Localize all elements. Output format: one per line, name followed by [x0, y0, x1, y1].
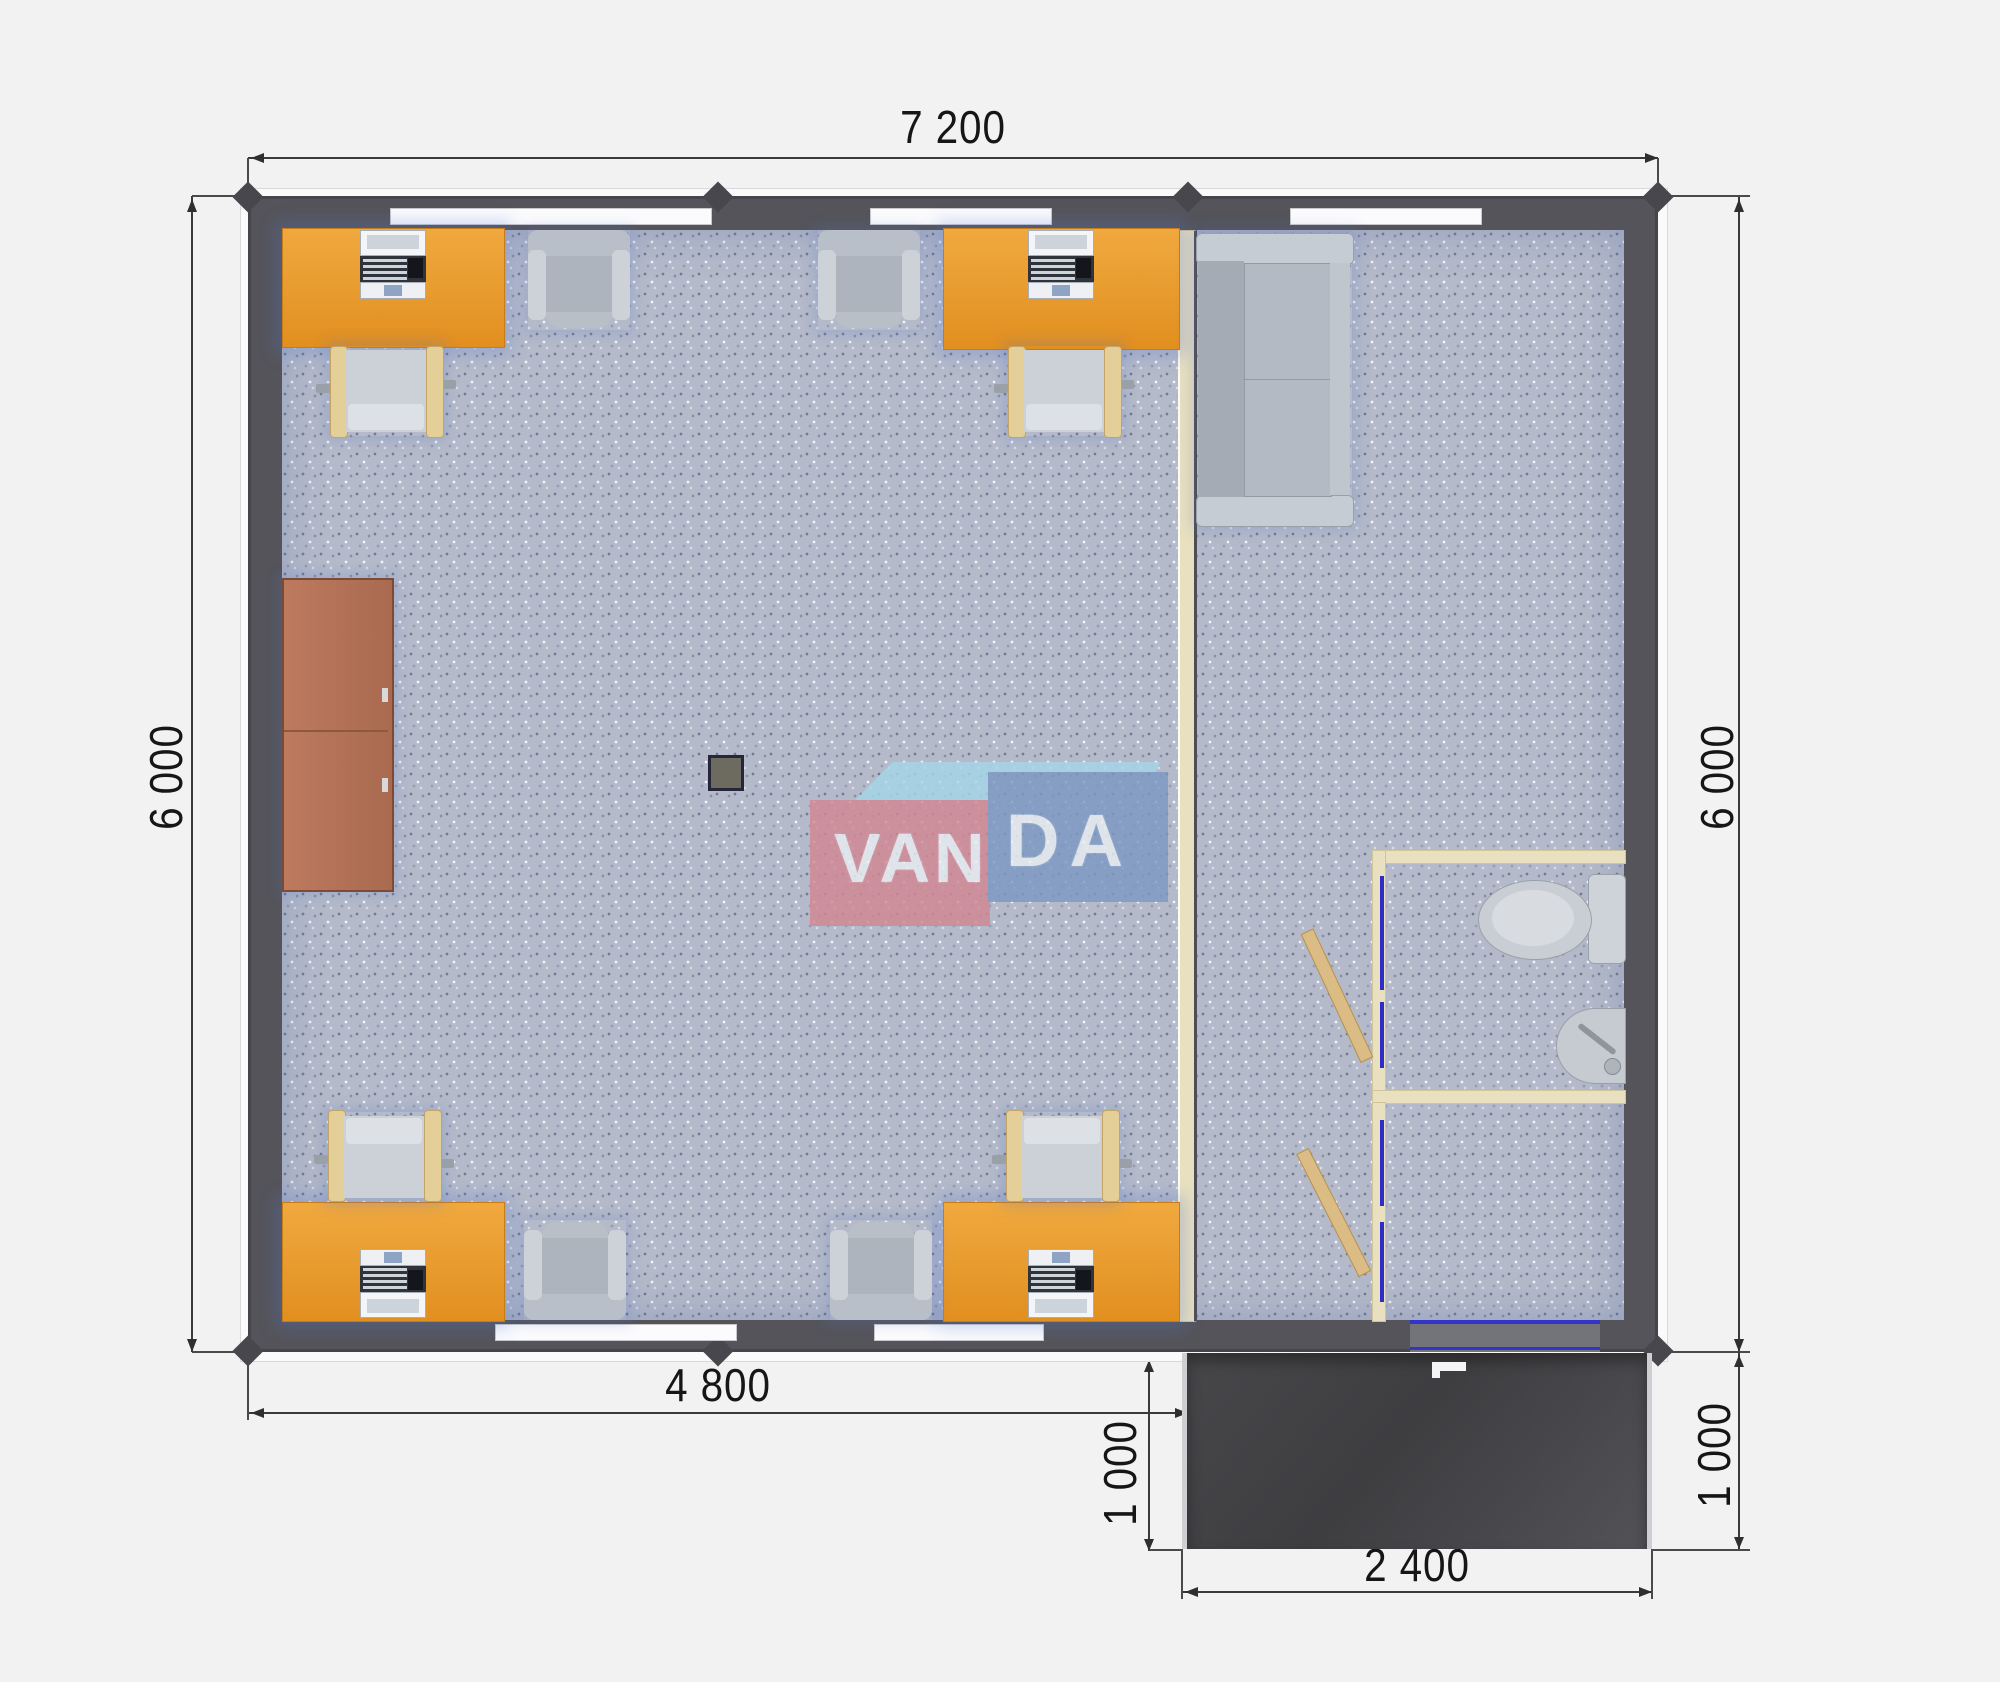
dim-arrow: [248, 1408, 264, 1418]
window-bottom-1: [495, 1324, 737, 1341]
desktop-computer: [1028, 1250, 1094, 1318]
cabinet-divider: [284, 730, 388, 732]
sofa-seat-cushion: [1244, 263, 1332, 381]
task-chair: [1008, 346, 1120, 436]
dim-arrow: [1734, 1352, 1744, 1367]
guest-armchair: [524, 1220, 626, 1320]
guest-armchair: [830, 1220, 932, 1320]
dim-porch-depth-left-label: 1 000: [1093, 1385, 1147, 1561]
dim-arrow: [1734, 196, 1744, 212]
dim-line-porch-left: [1148, 1357, 1150, 1551]
dim-line-top: [248, 157, 1658, 159]
vanda-watermark: VAN DA: [806, 758, 1170, 928]
toilet-bowl: [1478, 880, 1592, 960]
entrance-door-threshold: [1410, 1347, 1600, 1350]
computer-screen: [1028, 230, 1094, 256]
dim-left-height-label: 6 000: [139, 689, 193, 865]
bathroom-wall-top: [1372, 850, 1626, 864]
desktop-computer: [1028, 230, 1094, 298]
task-chair: [328, 1112, 440, 1202]
sofa-armrest: [1196, 495, 1354, 527]
cabinet-handle: [382, 688, 388, 702]
dim-porch-depth-right-label: 1 000: [1687, 1367, 1741, 1543]
logo-text-van: VAN: [834, 818, 989, 898]
dim-arrow: [187, 1339, 197, 1355]
sofa-seat-cushion: [1244, 379, 1332, 497]
desktop-computer: [360, 1250, 426, 1318]
vestibule-door-frame: [1380, 1120, 1384, 1206]
support-column: [708, 755, 744, 791]
cabinet-handle: [382, 778, 388, 792]
window-top-3: [1290, 208, 1482, 225]
computer-screen: [1028, 1292, 1094, 1318]
dim-arrow: [1639, 1587, 1655, 1597]
dim-arrow: [187, 196, 197, 212]
sink-faucet-knob: [1604, 1058, 1621, 1075]
bathroom-door-frame: [1380, 1002, 1384, 1068]
dim-ext: [1149, 1549, 1183, 1551]
task-chair: [330, 346, 442, 436]
logo-text-da: DA: [1006, 798, 1133, 883]
guest-armchair: [528, 230, 630, 330]
sofa: [1196, 233, 1352, 525]
bathroom-wall-bottom: [1372, 1090, 1626, 1104]
dim-line-room-width: [248, 1412, 1194, 1414]
guest-armchair: [818, 230, 920, 330]
window-bottom-2: [874, 1324, 1044, 1341]
desktop-computer: [360, 230, 426, 298]
computer-screen: [360, 230, 426, 256]
storage-cabinet: [282, 578, 394, 892]
toilet-tank: [1588, 874, 1626, 964]
sofa-back: [1198, 261, 1244, 497]
sofa-front-edge: [1330, 263, 1350, 495]
window-top-1: [390, 208, 712, 225]
dim-top-width-label: 7 200: [865, 100, 1041, 154]
vestibule-door-frame: [1380, 1222, 1384, 1302]
bathroom-door-frame: [1380, 876, 1384, 990]
window-top-2: [870, 208, 1052, 225]
floor-plan: 7 200 6 000 6 000 4 800 1 000 1 000 2 40…: [0, 0, 2000, 1682]
computer-screen: [360, 1292, 426, 1318]
entrance-porch: [1182, 1353, 1652, 1549]
dim-arrow: [248, 153, 264, 163]
dim-right-height-label: 6 000: [1690, 689, 1744, 865]
dim-arrow: [1182, 1587, 1198, 1597]
dim-arrow: [1645, 153, 1661, 163]
entrance-door-threshold: [1410, 1320, 1600, 1324]
partition-wall: [1178, 230, 1197, 1322]
porch-door-handle: [1432, 1362, 1440, 1378]
task-chair: [1006, 1112, 1118, 1202]
